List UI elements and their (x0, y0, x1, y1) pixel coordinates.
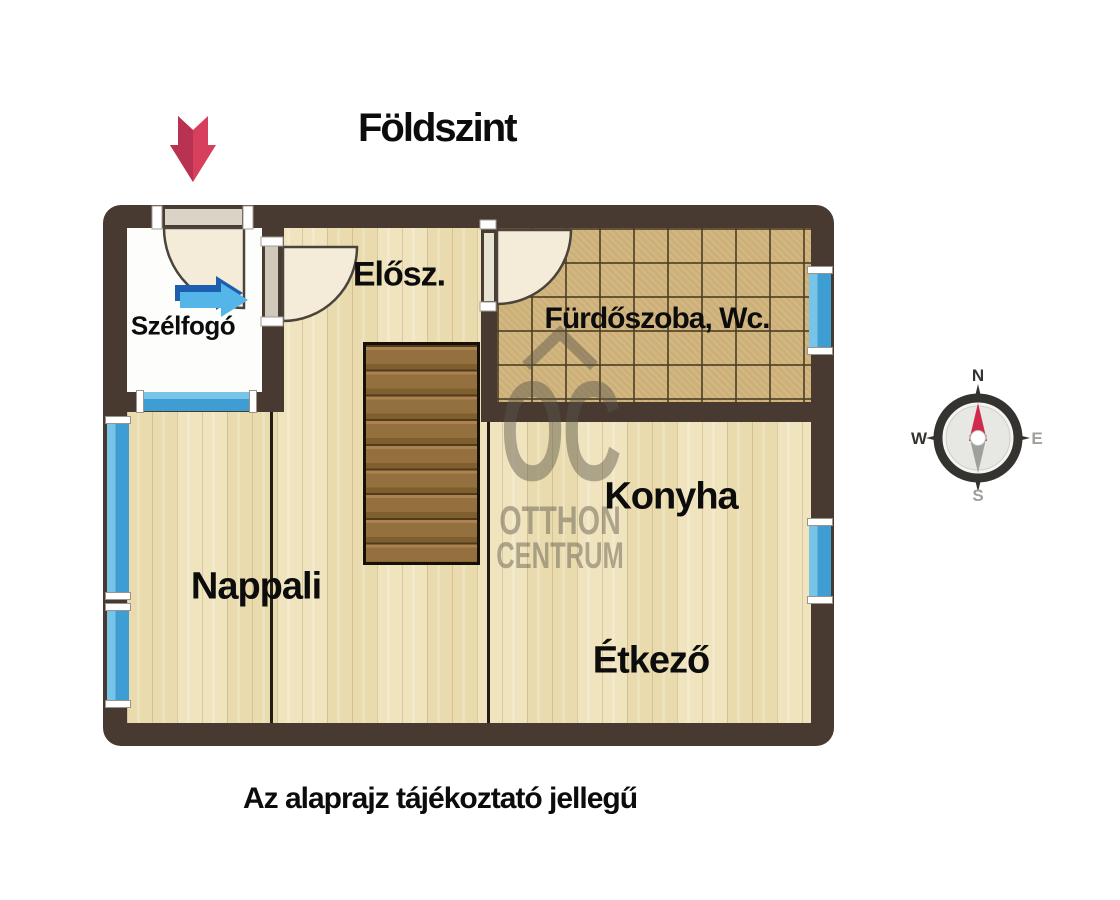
compass-rose-icon: N E S W (911, 366, 1043, 505)
window-kitchen (809, 525, 831, 597)
window-nappali-upper (107, 423, 129, 593)
compass-north-label: N (972, 366, 984, 385)
bathroom-bottom-wall (481, 402, 811, 422)
room-label-nappali: Nappali (191, 566, 321, 609)
compass-east-label: E (1031, 429, 1042, 448)
konyha-partition-line (487, 422, 490, 723)
room-label-etkezo: Étkező (593, 640, 709, 683)
room-label-konyha: Konyha (604, 476, 737, 519)
elosz-door-leaf (263, 244, 280, 320)
window-nappali-lower (107, 610, 129, 701)
compass-west-label: W (911, 429, 928, 448)
floor-plan-page: Földszint (0, 0, 1120, 900)
room-label-elosz: Elősz. (353, 256, 445, 295)
room-label-szelfogo: Szélfogó (131, 311, 235, 342)
bathroom-door-leaf (482, 231, 496, 303)
staircase (363, 342, 480, 565)
page-title: Földszint (358, 106, 516, 151)
window-szelfogo (143, 392, 250, 411)
room-label-furdoszoba: Fürdőszoba, Wc. (545, 302, 770, 336)
entrance-door-leaf (163, 207, 244, 227)
entrance-arrow-icon (170, 116, 216, 182)
compass-south-label: S (972, 486, 983, 505)
window-bathroom (809, 273, 831, 348)
disclaimer-text: Az alaprajz tájékoztató jellegű (210, 782, 670, 816)
